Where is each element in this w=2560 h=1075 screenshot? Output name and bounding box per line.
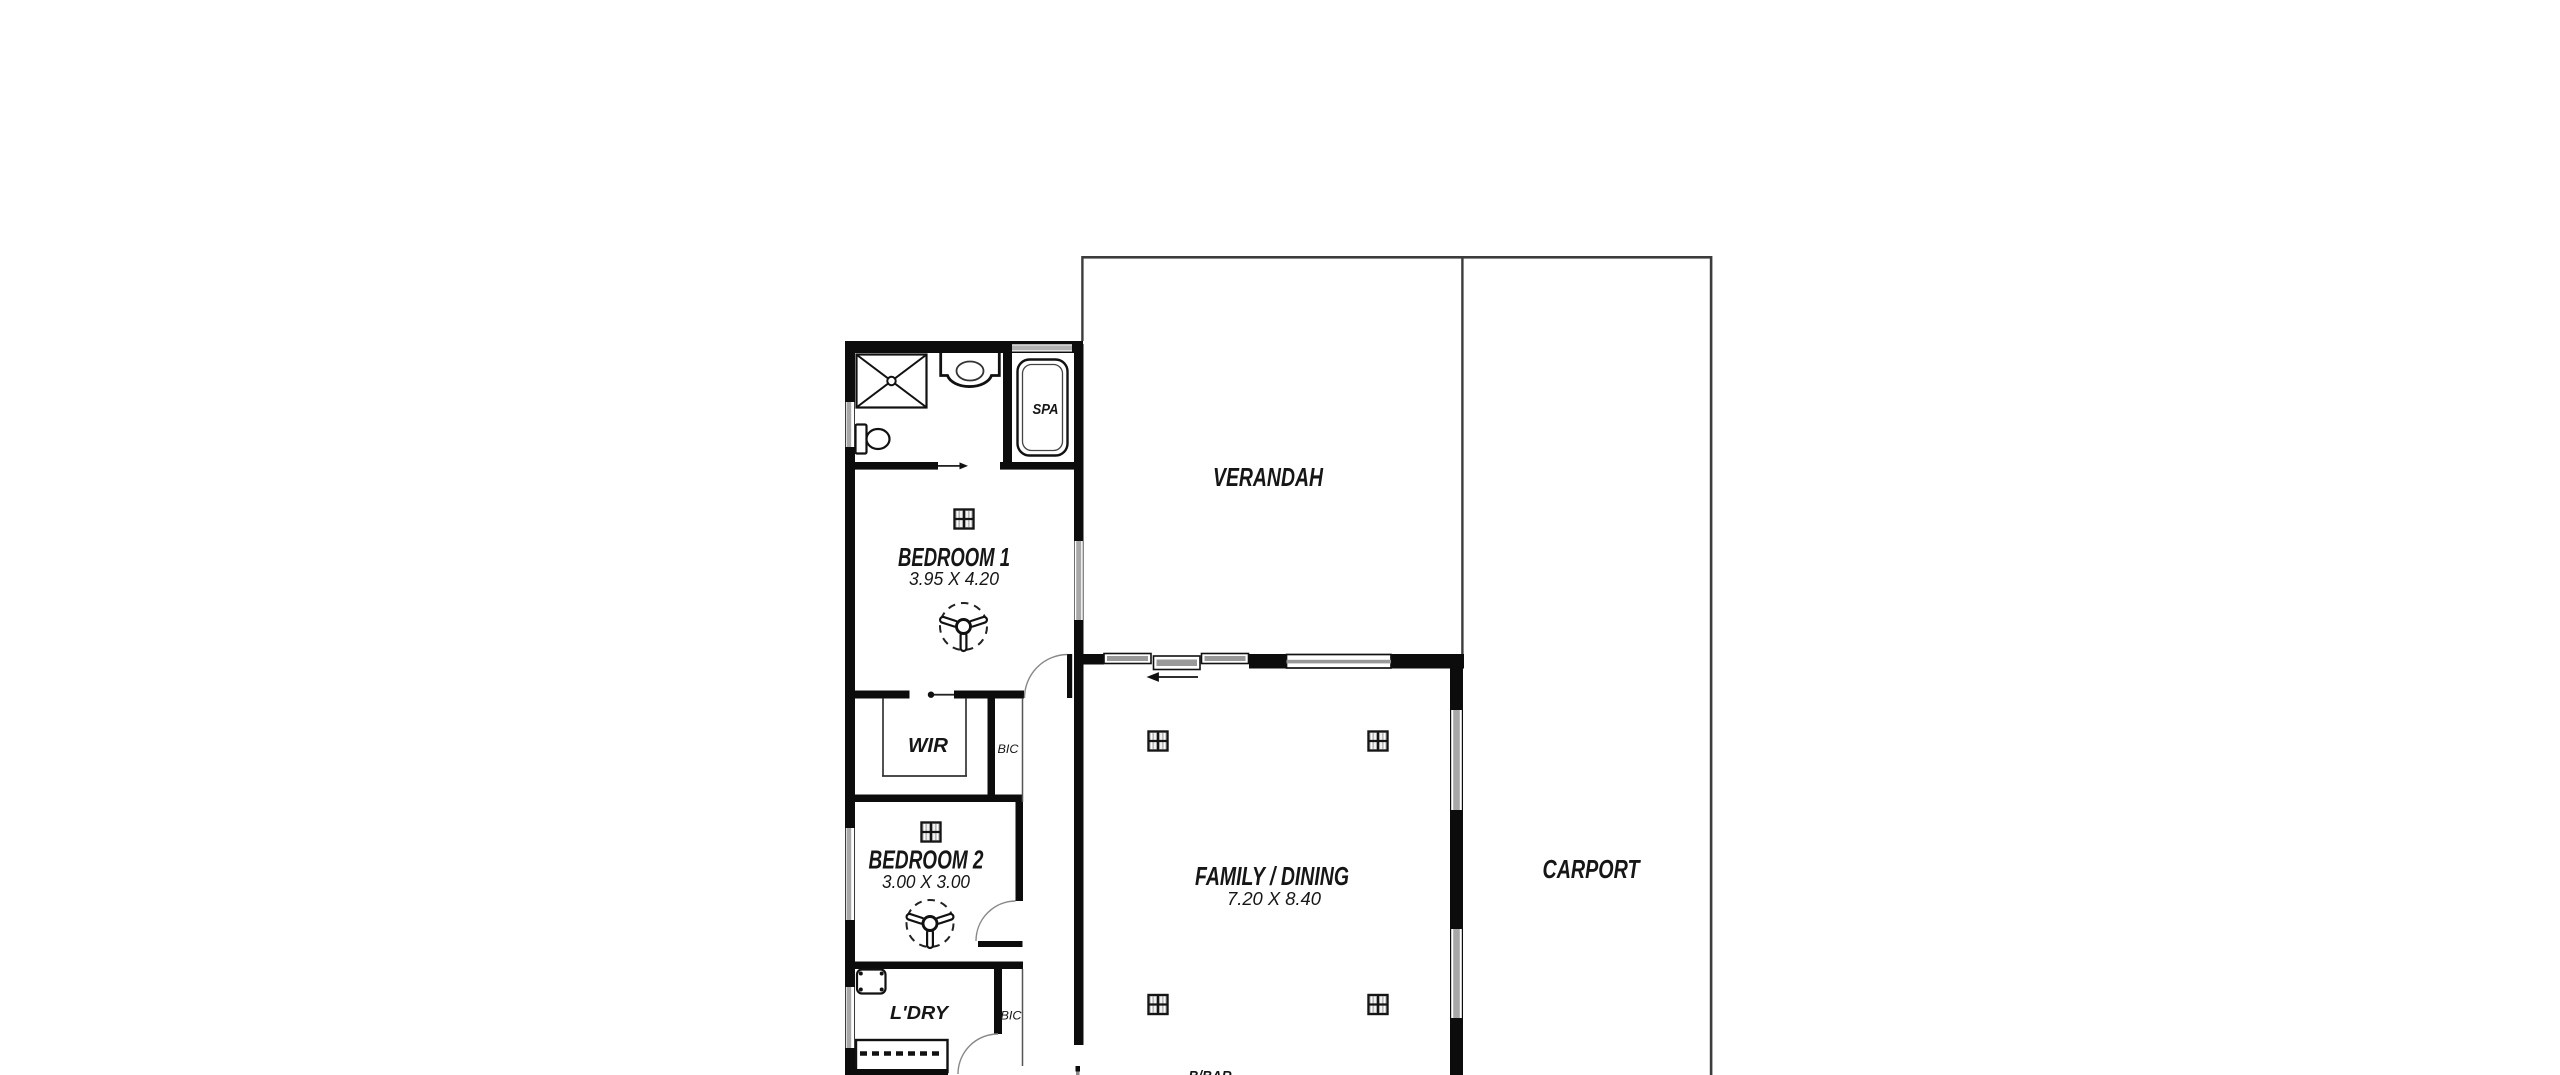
svg-text:BIC: BIC [998, 742, 1019, 756]
svg-text:BIC: BIC [1001, 1009, 1022, 1023]
svg-text:WIR: WIR [908, 735, 949, 757]
svg-text:L'DRY: L'DRY [890, 1003, 950, 1023]
svg-text:3.95 X 4.20: 3.95 X 4.20 [909, 569, 999, 589]
svg-text:7.20 X 8.40: 7.20 X 8.40 [1227, 889, 1321, 909]
svg-text:SPA: SPA [1033, 402, 1059, 418]
svg-text:BEDROOM 1: BEDROOM 1 [898, 542, 1010, 572]
svg-text:BEDROOM 2: BEDROOM 2 [869, 845, 984, 875]
svg-text:3.00 X 3.00: 3.00 X 3.00 [882, 872, 970, 892]
svg-text:B/BAR: B/BAR [1189, 1068, 1232, 1075]
svg-text:CARPORT: CARPORT [1543, 854, 1642, 884]
svg-text:FAMILY / DINING: FAMILY / DINING [1195, 861, 1349, 891]
svg-text:VERANDAH: VERANDAH [1213, 462, 1324, 492]
